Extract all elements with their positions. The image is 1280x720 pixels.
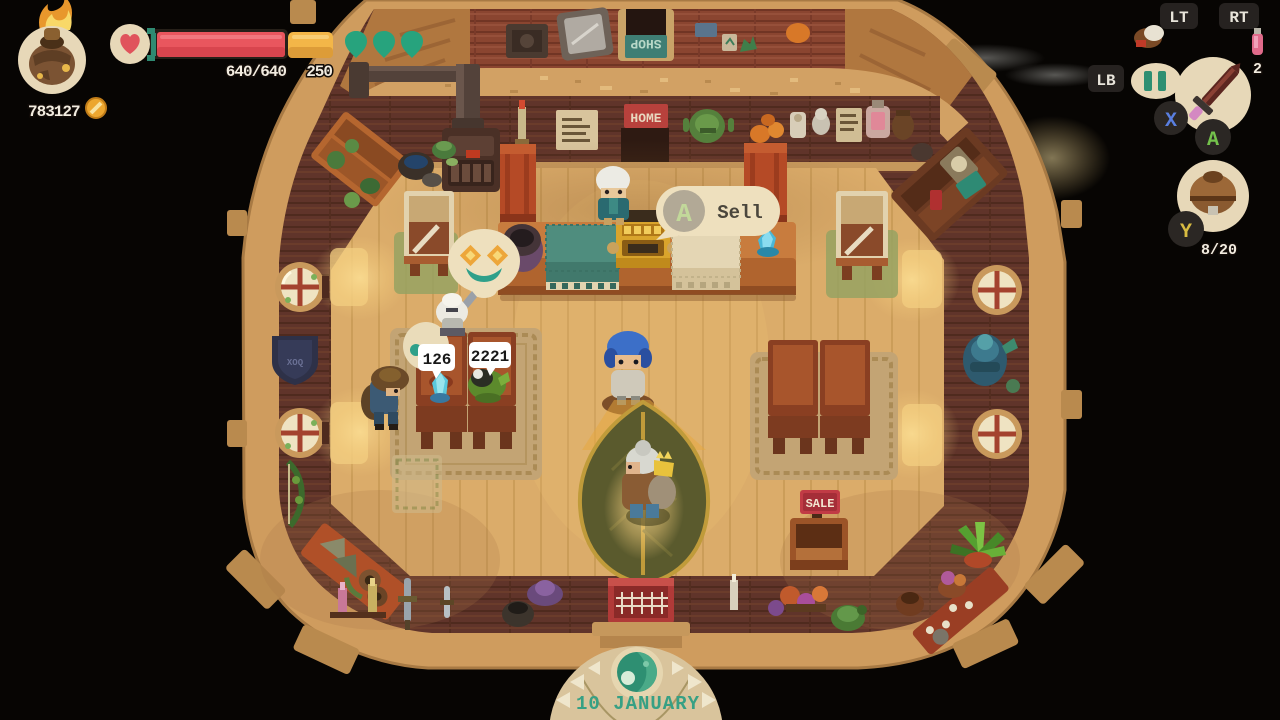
svg-text:HOME: HOME <box>630 111 661 126</box>
svg-text:250: 250 <box>306 63 332 81</box>
svg-text:RT: RT <box>1229 9 1249 27</box>
svg-text:8/20: 8/20 <box>1201 242 1237 259</box>
svg-text:A: A <box>1207 129 1219 152</box>
svg-text:10 JANUARY: 10 JANUARY <box>576 693 700 715</box>
svg-text:LT: LT <box>1169 9 1189 27</box>
svg-text:783127: 783127 <box>28 103 80 121</box>
svg-text:Y: Y <box>1180 221 1192 244</box>
svg-text:LB: LB <box>1096 72 1116 90</box>
svg-text:XOQ: XOQ <box>287 358 304 368</box>
svg-text:640/640: 640/640 <box>226 63 287 81</box>
svg-text:SHOP: SHOP <box>630 36 661 51</box>
svg-text:X: X <box>1165 110 1177 133</box>
svg-text:126: 126 <box>423 351 452 369</box>
svg-text:2221: 2221 <box>471 348 509 366</box>
svg-text:2: 2 <box>1253 61 1262 78</box>
svg-text:Sell: Sell <box>717 202 763 224</box>
svg-text:A: A <box>676 199 692 229</box>
svg-text:SALE: SALE <box>806 497 835 511</box>
